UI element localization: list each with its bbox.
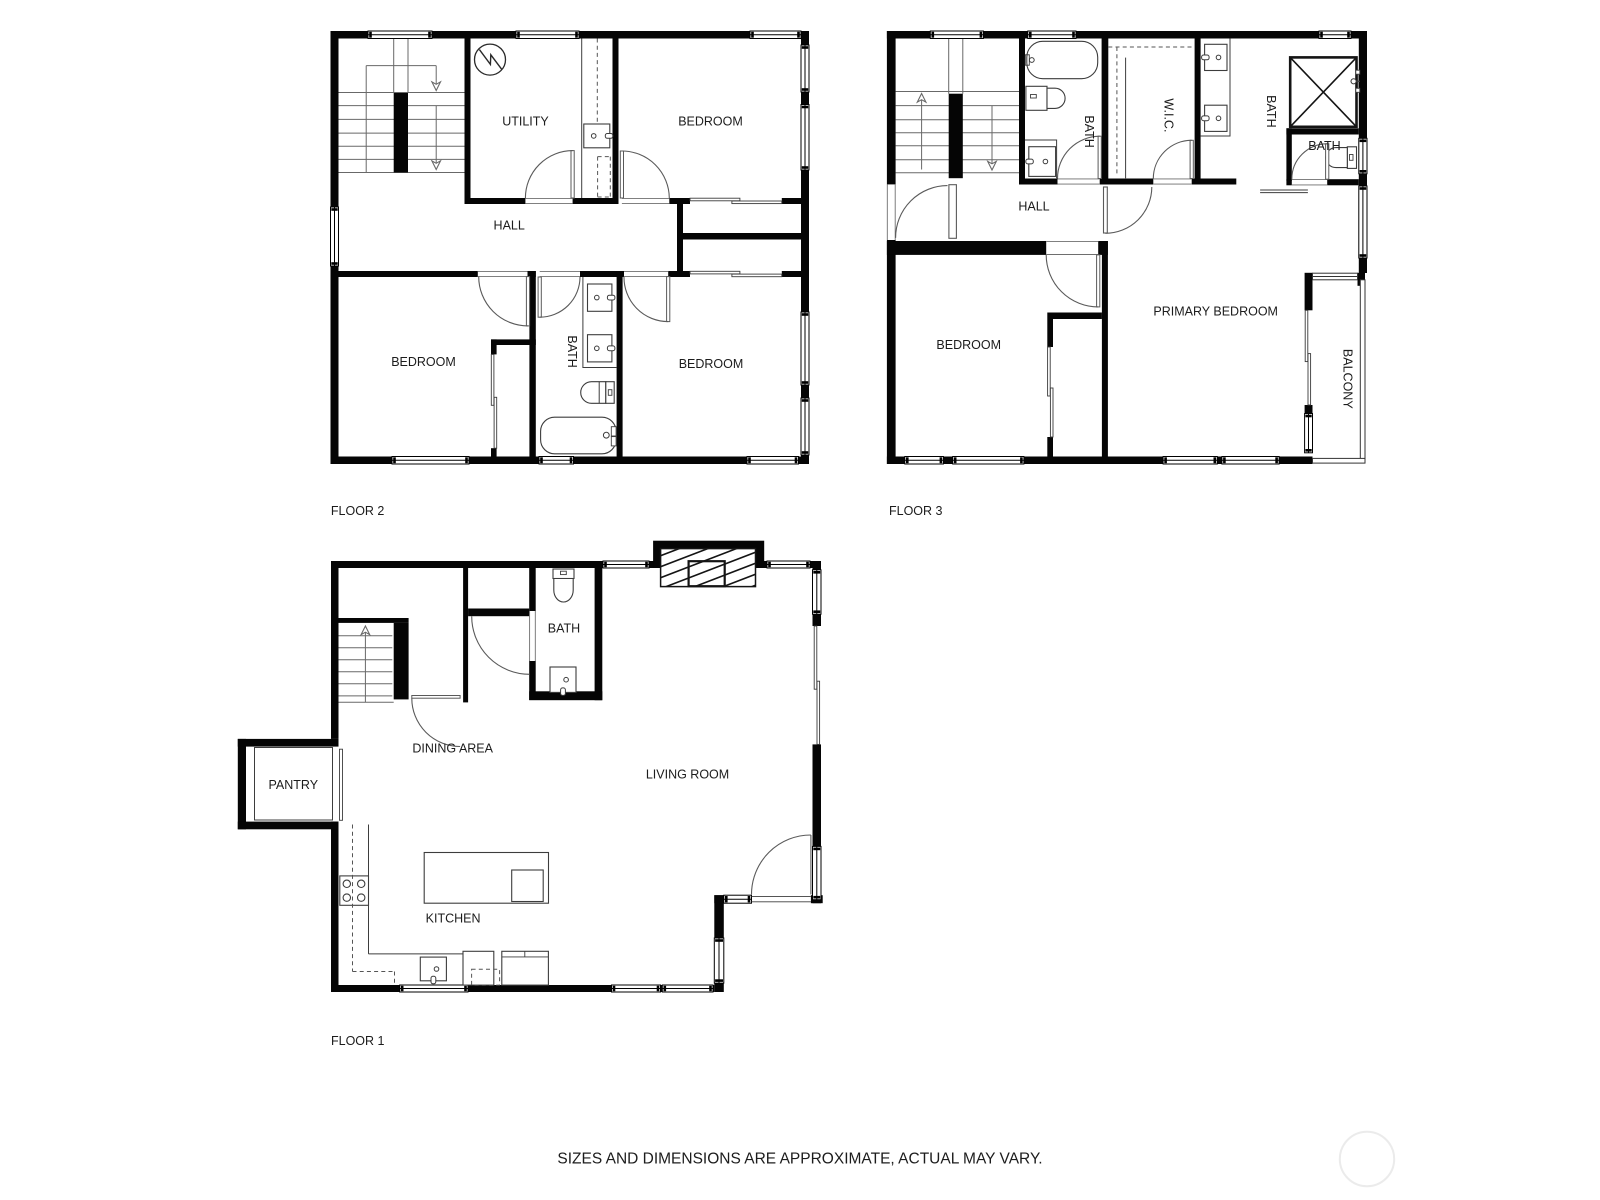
svg-text:BATH: BATH <box>1082 115 1096 147</box>
svg-text:W.I.C.: W.I.C. <box>1162 98 1176 132</box>
svg-text:PRIMARY BEDROOM: PRIMARY BEDROOM <box>1153 305 1278 319</box>
svg-text:BATH: BATH <box>565 335 579 367</box>
svg-text:HALL: HALL <box>494 219 525 233</box>
svg-text:UTILITY: UTILITY <box>502 114 549 128</box>
svg-text:BALCONY: BALCONY <box>1340 349 1354 409</box>
svg-text:DINING AREA: DINING AREA <box>412 742 493 756</box>
svg-text:BEDROOM: BEDROOM <box>679 357 744 371</box>
svg-text:SIZES AND DIMENSIONS ARE APPRO: SIZES AND DIMENSIONS ARE APPROXIMATE, AC… <box>557 1150 1042 1167</box>
svg-text:BEDROOM: BEDROOM <box>391 355 456 369</box>
svg-text:FLOOR 2: FLOOR 2 <box>331 504 385 518</box>
svg-text:HALL: HALL <box>1018 200 1049 214</box>
svg-text:FLOOR 3: FLOOR 3 <box>889 504 943 518</box>
svg-text:BEDROOM: BEDROOM <box>678 115 743 129</box>
svg-text:BEDROOM: BEDROOM <box>936 338 1001 352</box>
svg-text:BATH: BATH <box>1264 95 1278 127</box>
svg-text:FLOOR 1: FLOOR 1 <box>331 1034 385 1048</box>
svg-text:BATH: BATH <box>548 622 580 636</box>
svg-text:KITCHEN: KITCHEN <box>426 912 481 926</box>
svg-text:PANTRY: PANTRY <box>269 778 319 792</box>
svg-text:LIVING ROOM: LIVING ROOM <box>646 768 729 782</box>
svg-text:BATH: BATH <box>1308 139 1340 153</box>
